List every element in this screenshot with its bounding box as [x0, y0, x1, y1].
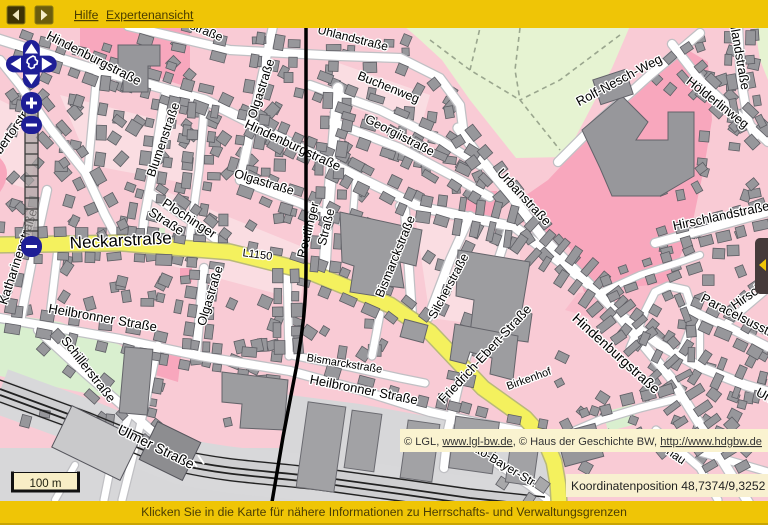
svg-text:Hilfe: Hilfe	[74, 8, 99, 22]
svg-text:© LGL, www.lgl-bw.de, © Haus d: © LGL, www.lgl-bw.de, © Haus der Geschic…	[404, 436, 762, 448]
svg-text:Klicken Sie in die Karte für n: Klicken Sie in die Karte für nähere Info…	[141, 505, 627, 519]
svg-text:100 m: 100 m	[30, 478, 62, 490]
svg-text:Koordinatenposition 48,7374/9,: Koordinatenposition 48,7374/9,3252	[571, 479, 766, 493]
svg-text:Expertenansicht: Expertenansicht	[106, 8, 194, 22]
